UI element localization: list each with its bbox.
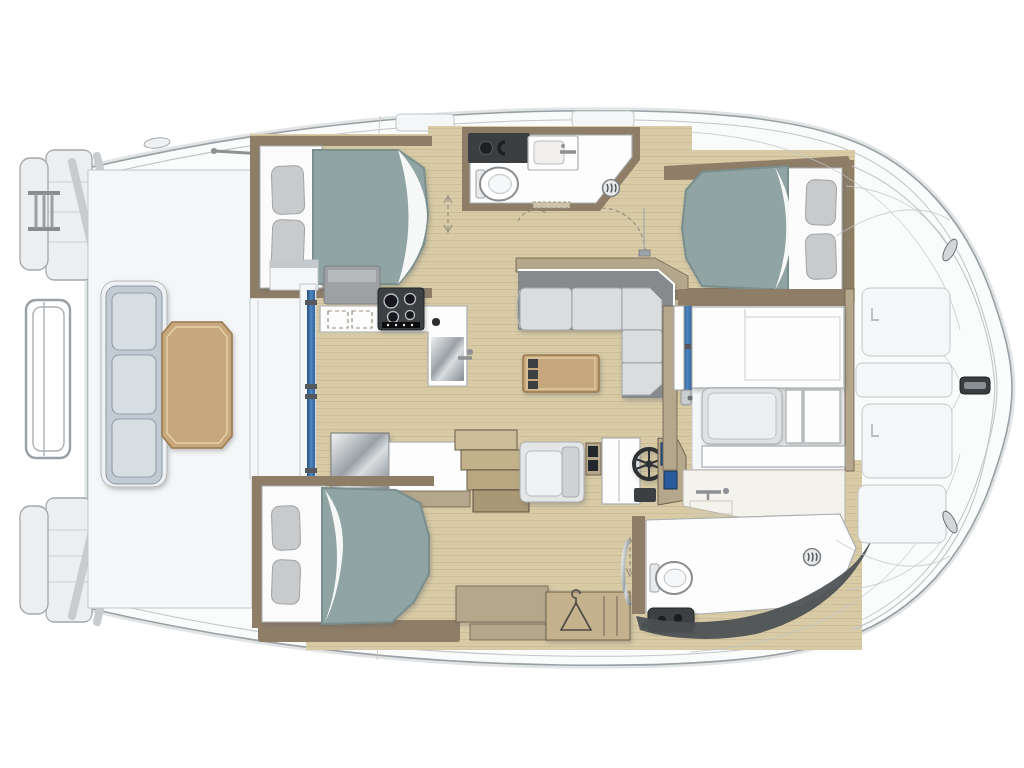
sofa-corner-cushion: [622, 288, 662, 330]
pillow: [271, 506, 301, 551]
shower-drain-icon: [603, 180, 620, 197]
door-latch: [681, 390, 693, 405]
compass-box: [634, 488, 656, 502]
toilet-icon: [476, 168, 518, 201]
deck-hatch: [862, 288, 950, 356]
cabin-wall: [250, 136, 260, 298]
instrument-screen: [664, 471, 677, 489]
bench-base-band: [702, 446, 845, 467]
shower-drain-icon: [804, 549, 821, 566]
toilet-icon: [650, 562, 692, 594]
bathroom-wall: [632, 516, 645, 614]
double-bed-mattress: [682, 166, 788, 290]
salon-window-front: [300, 284, 317, 494]
forward-cockpit: [663, 289, 854, 471]
cabin-step-edge: [270, 260, 318, 268]
cabin-wall: [252, 476, 262, 628]
coffee-table: [523, 355, 599, 392]
basin-icon: [480, 142, 493, 155]
counter-knob: [432, 318, 440, 326]
pillow: [805, 233, 837, 279]
sofa-cushion: [520, 288, 572, 330]
deck-hatch: [862, 404, 952, 478]
door-frame: [674, 306, 684, 390]
cockpit-wall-right: [845, 289, 854, 471]
side-cabinet: [586, 443, 601, 475]
bench-cushion: [112, 293, 156, 350]
deck-hatch: [858, 485, 946, 543]
yacht-floor-plan: [0, 0, 1024, 768]
cockpit-table: [692, 307, 844, 388]
door-stop: [639, 250, 650, 256]
navigator-seat: [520, 442, 584, 502]
pillow: [271, 165, 305, 214]
sofa-cushion: [572, 288, 622, 330]
cockpit-wall-top: [678, 289, 852, 306]
galley-appliance-top: [328, 270, 376, 282]
transom-wing-bottom: [20, 506, 48, 614]
helm-station: [520, 438, 686, 505]
pillow: [805, 179, 837, 225]
door-threshold: [533, 202, 570, 208]
bench-cushion: [112, 355, 156, 414]
sofa-cushion: [622, 330, 662, 363]
floor-plan-canvas: [0, 0, 1024, 768]
cockpit-table: [162, 322, 232, 448]
cockpit-bench: [702, 388, 840, 444]
deck-hatch: [856, 363, 952, 397]
cabin-wall: [252, 476, 434, 486]
bow-cleat-icon: [960, 377, 990, 394]
cabin-cabinet: [470, 624, 548, 640]
coachroof-panel: [572, 111, 634, 127]
washbasin: [528, 136, 578, 170]
bench-cushion: [112, 419, 156, 477]
pillow: [271, 560, 301, 605]
cabin-cabinet: [456, 586, 548, 622]
cabin-wall: [250, 136, 432, 146]
stove-icon: [378, 288, 424, 330]
wardrobe: [546, 590, 630, 640]
